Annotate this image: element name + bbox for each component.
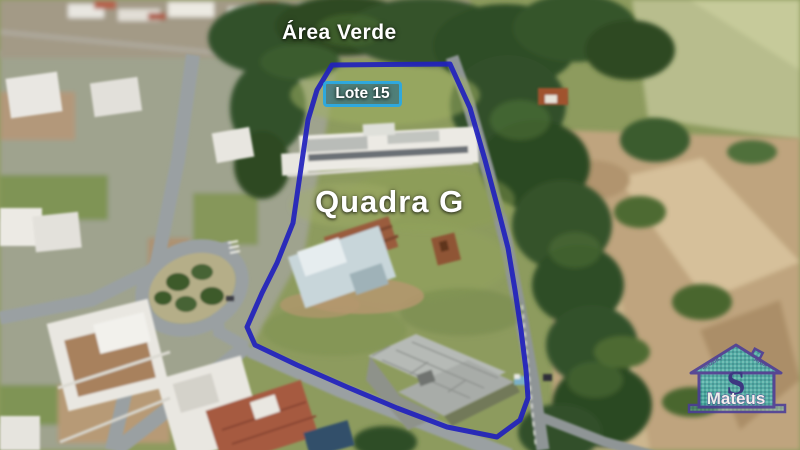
real-estate-aerial-listing-image: Área Verde Lote 15 Quadra G IMOBILI ÁRIA… [0, 0, 800, 450]
area-verde-label: Área Verde [282, 21, 397, 45]
lot-label-box: Lote 15 [323, 81, 402, 107]
logo-name-text: Mateus [707, 389, 766, 408]
block-label: Quadra G [315, 184, 464, 220]
realty-logo-watermark: IMOBILI ÁRIA S Mateus [686, 341, 788, 421]
lot-label-text: Lote 15 [335, 85, 389, 103]
house-in-trees [538, 88, 568, 105]
aerial-photo [0, 0, 800, 450]
logo-house-icon: IMOBILI ÁRIA S Mateus [686, 341, 788, 421]
